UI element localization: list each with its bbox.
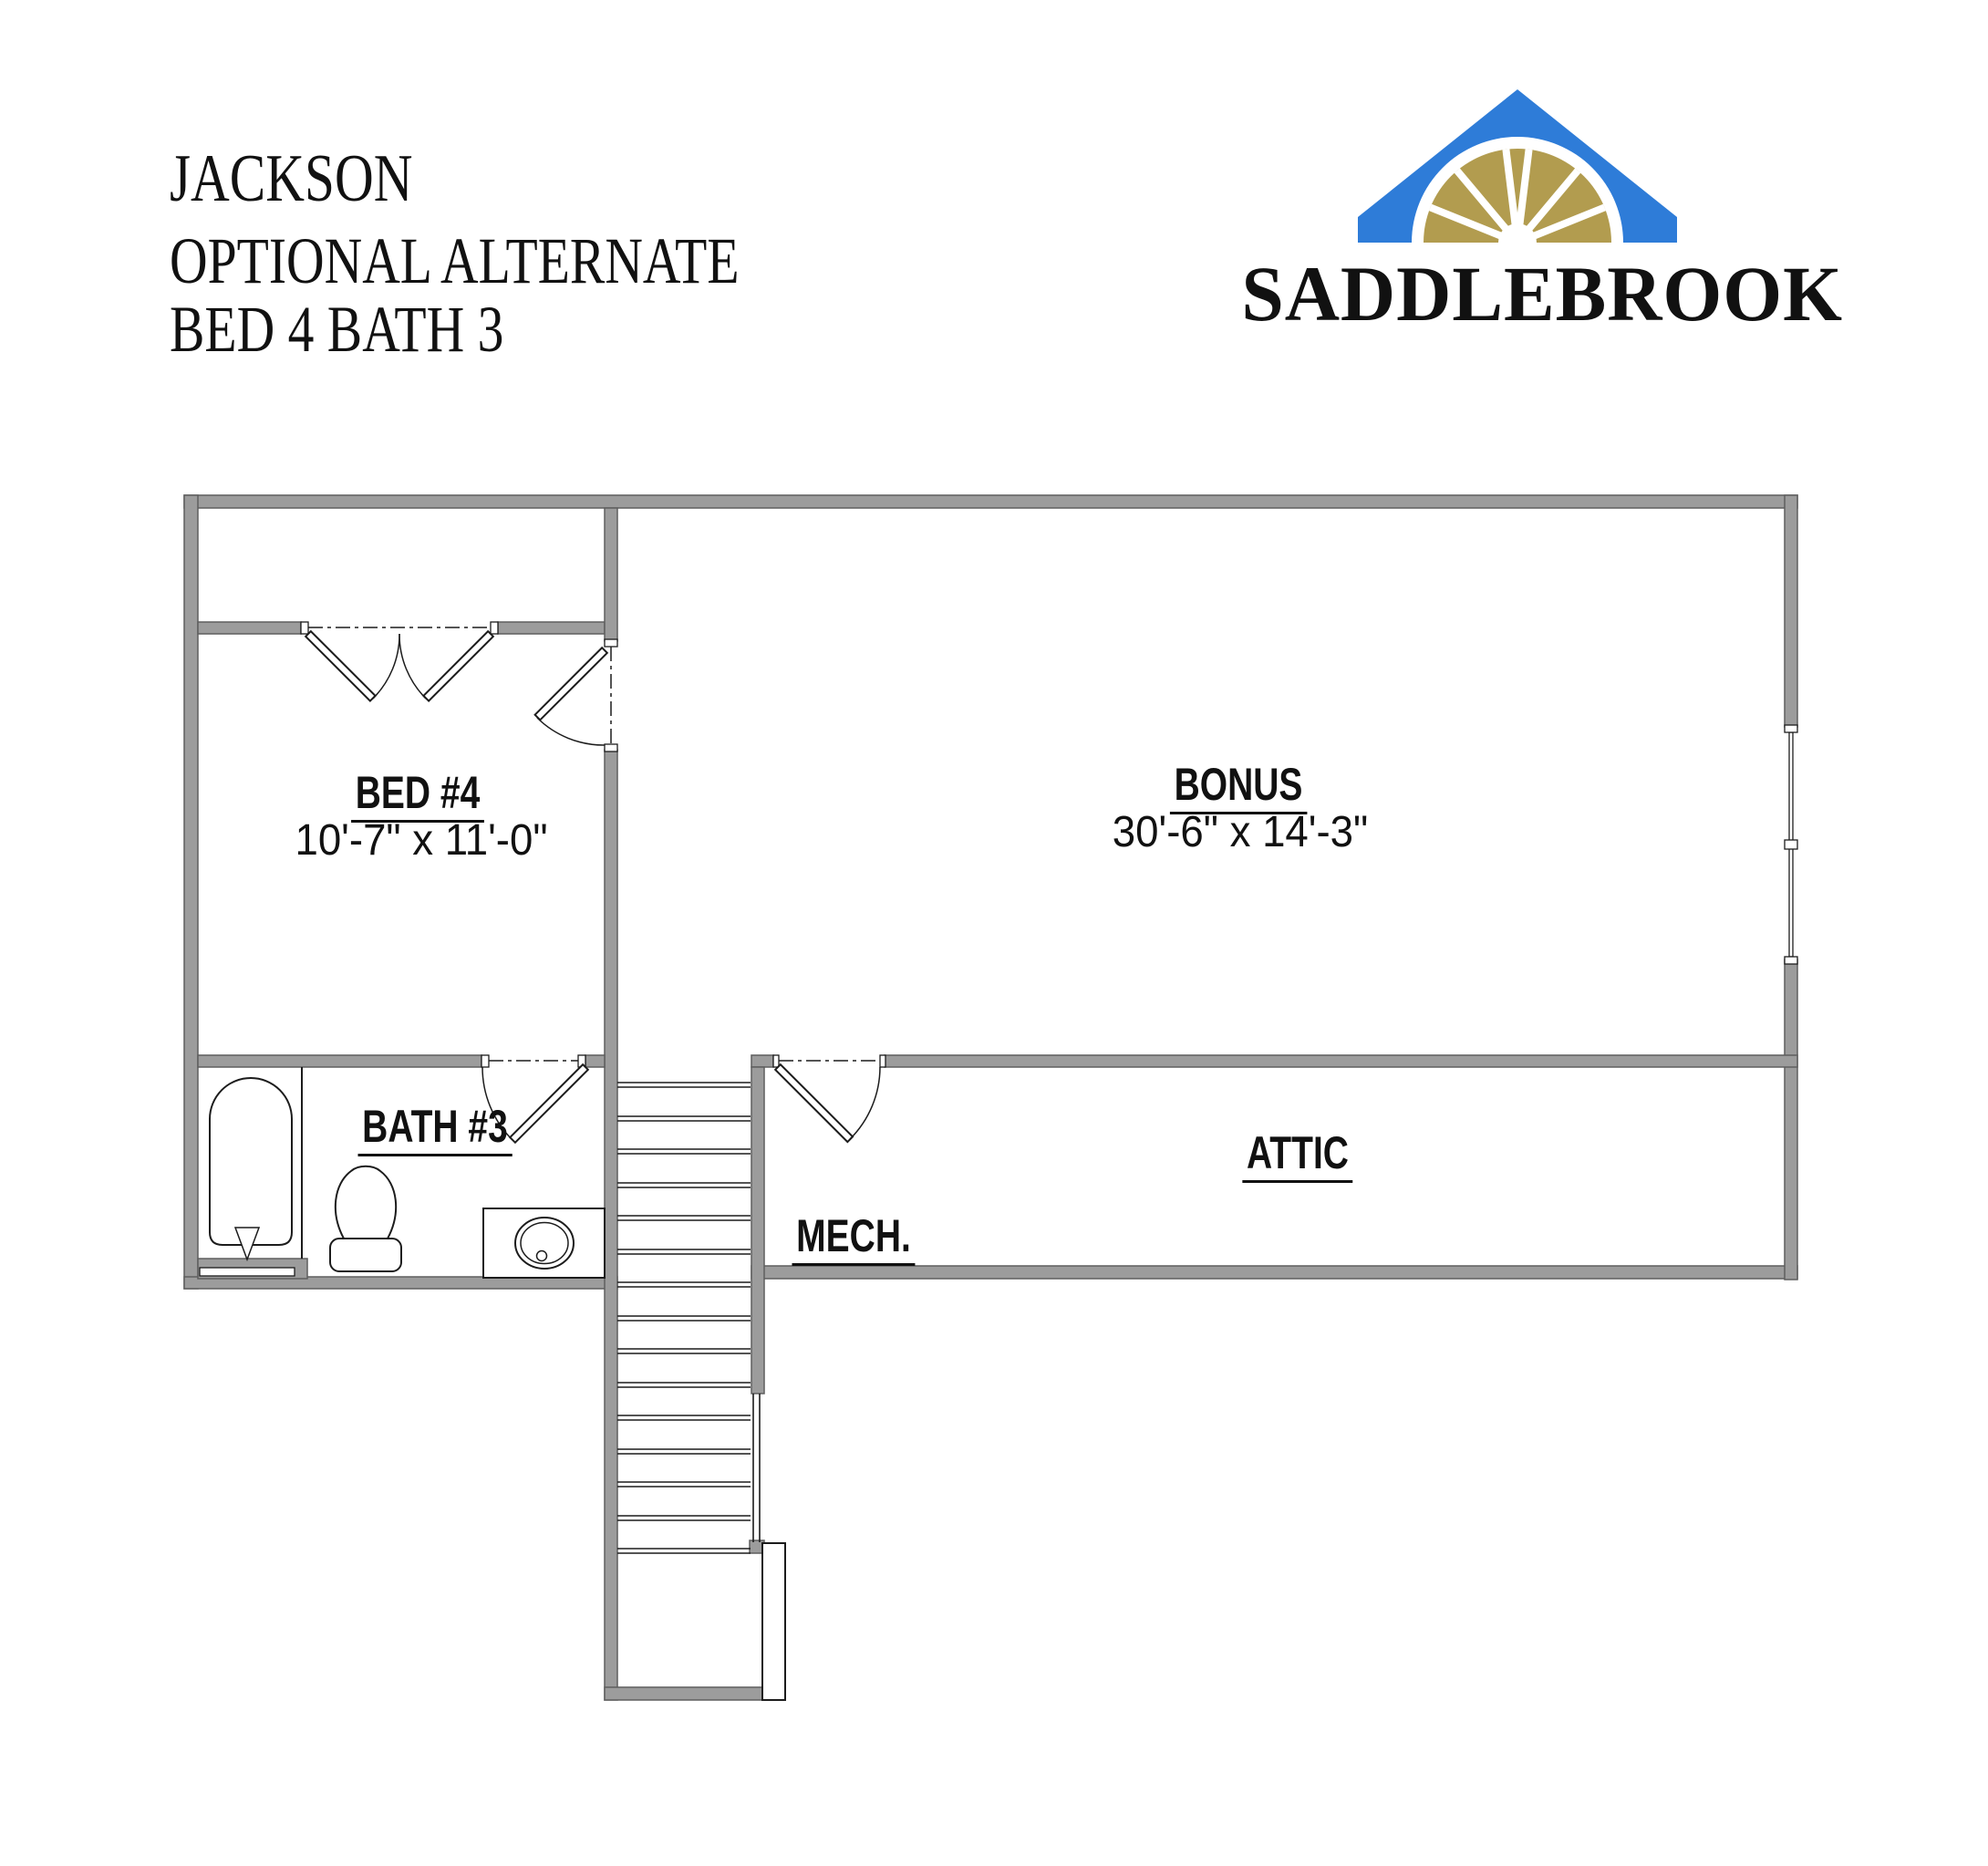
right-exterior-wall-upper [1785,495,1797,727]
divider-stair-left-wall [605,750,617,1700]
bed4-door-jamb-top [605,639,617,647]
room-label-attic: ATTIC [1242,1130,1352,1183]
bed-bath-wall-right [585,1055,605,1067]
closet-right-swing-arc [399,634,426,699]
floor-plan-drawing [0,0,1988,1866]
bath-door-jamb-left [481,1055,489,1067]
right-exterior-wall-lower [1785,959,1797,1280]
attic-top-wall-left [751,1055,773,1067]
toilet-tank [330,1239,401,1271]
mech-door [775,1064,880,1142]
closet-jamb-left [301,622,308,634]
mech-door-jamb-right [880,1055,885,1067]
bed4-door-jamb-bottom [605,744,617,752]
top-exterior-wall [184,495,1797,508]
closet-wall-left [198,622,301,634]
mech-door-swing-arc [850,1067,880,1139]
mech-door-jamb-left [773,1055,779,1067]
bed4-door-swing-arc [537,718,605,745]
room-label-bath3: BATH #3 [357,1104,512,1156]
stair-right-wall [751,1067,764,1394]
attic-top-wall-right [885,1055,1797,1067]
divider-wall-upper [605,508,617,641]
window-jamb-top [1785,725,1797,732]
closet-double-door [305,631,493,700]
closet-left-leaf [305,631,375,700]
window-jamb-bottom [1785,957,1797,964]
bed4-door [535,648,607,745]
bath-fixtures [200,1067,605,1278]
attic-bottom-wall [751,1266,1797,1279]
stair-rail-return [762,1543,785,1700]
closet-right-leaf [423,631,492,700]
bonus-window [1785,725,1797,964]
closet-left-swing-arc [373,634,399,699]
bed4-door-leaf [535,648,607,720]
sink-basin-outer [515,1218,574,1269]
room-label-bonus: BONUS [1170,762,1307,814]
stair-handrail [753,1394,760,1542]
bath-door-leaf [510,1064,588,1143]
left-exterior-wall [184,495,198,1289]
bathtub [210,1078,292,1245]
room-dims-bed4: 10'-7" x 11'-0" [295,819,547,863]
stair-bottom-wall [605,1687,764,1700]
room-label-mech: MECH. [792,1213,915,1266]
mech-door-leaf [775,1064,853,1142]
tub-platform-slot [200,1268,295,1276]
bed-bath-wall-left [198,1055,481,1067]
toilet-bowl [336,1166,396,1239]
closet-jamb-right [491,622,498,634]
window-mullion [1785,840,1797,849]
closet-wall-right [498,622,605,634]
stair-treads [617,1083,751,1553]
room-dims-bonus: 30'-6" x 14'-3" [1113,811,1368,855]
room-label-bed4: BED #4 [351,770,484,823]
walls [184,495,1797,1700]
